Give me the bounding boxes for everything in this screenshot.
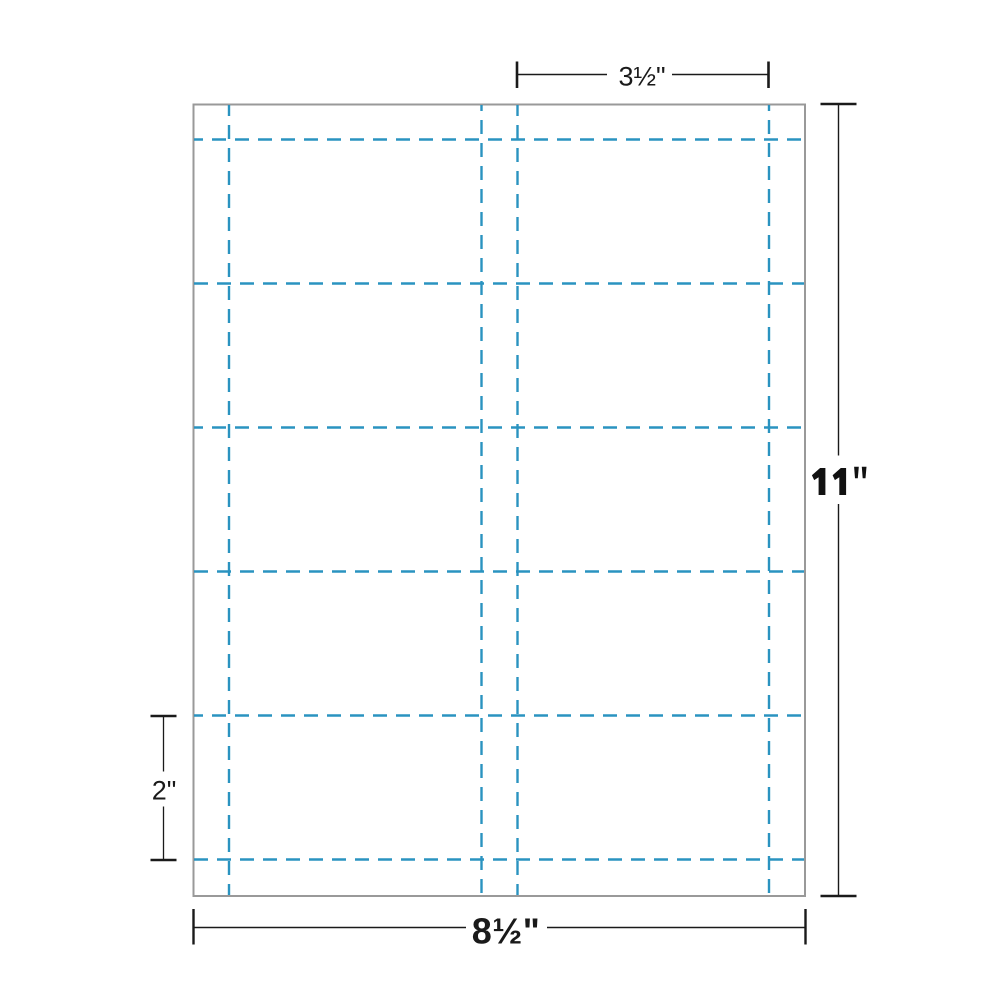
svg-text:2": 2" bbox=[152, 776, 177, 806]
svg-text:3½": 3½" bbox=[618, 62, 665, 92]
svg-text:8½": 8½" bbox=[472, 911, 541, 952]
